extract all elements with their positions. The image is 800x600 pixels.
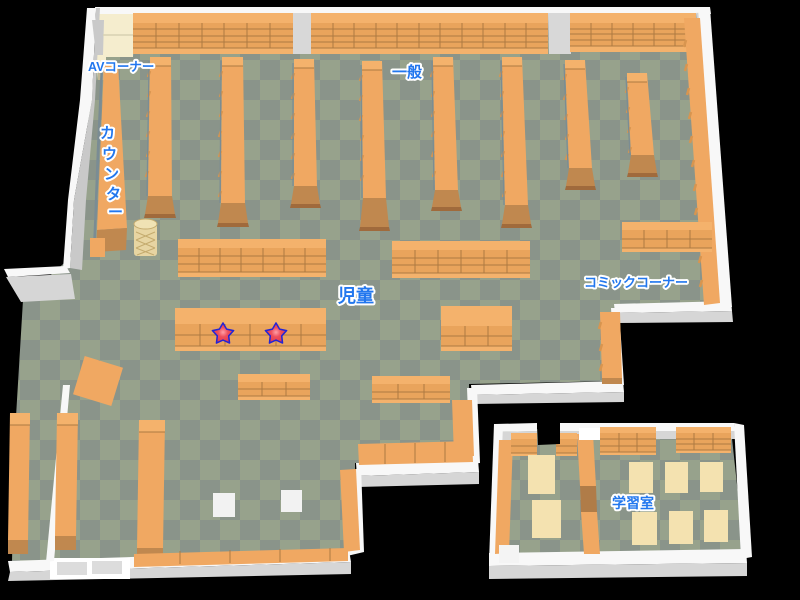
svg-text:AVコーナー: AVコーナー [88,60,154,74]
svg-text:児童: 児童 [337,285,374,306]
svg-text:ウ: ウ [102,146,117,163]
svg-text:一般: 一般 [392,63,422,81]
svg-text:カ: カ [100,125,115,142]
svg-text:コミックコーナー: コミックコーナー [584,275,688,290]
svg-text:ー: ー [108,204,123,221]
svg-text:学習室: 学習室 [612,495,654,511]
svg-text:タ: タ [106,186,121,203]
svg-text:ン: ン [104,166,119,183]
